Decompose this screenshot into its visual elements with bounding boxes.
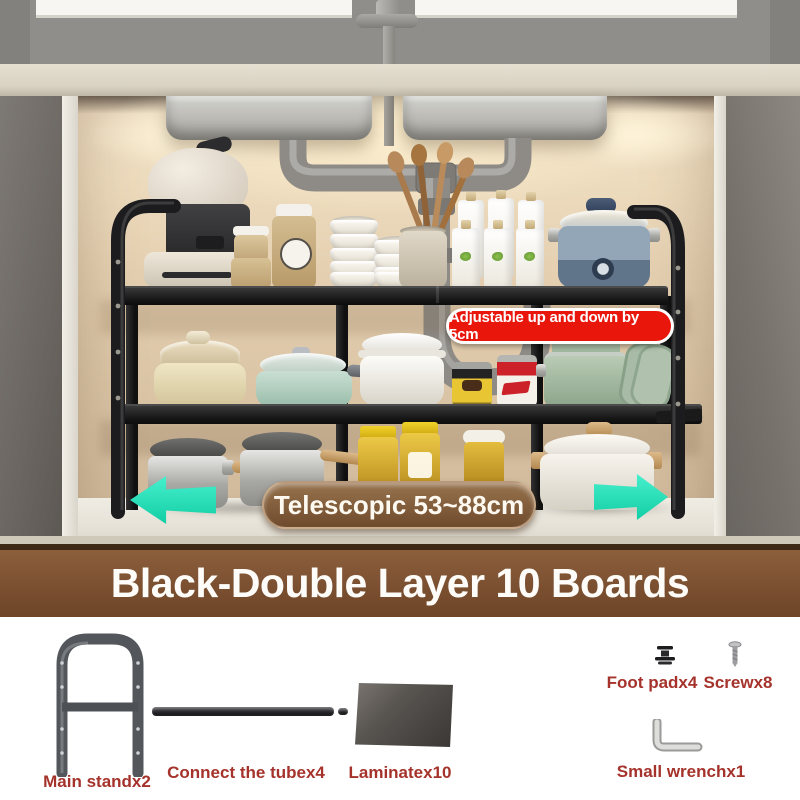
foot-pad-label: Foot padx4 (596, 673, 708, 693)
main-stand-label: Main standx2 (18, 772, 176, 792)
laminate-icon (355, 683, 453, 747)
main-stand-icon (48, 627, 150, 777)
connect-tube-icon (152, 707, 334, 716)
screw-icon (726, 641, 744, 671)
product-image: Adjustable up and down by 5cm Telescopic… (0, 0, 800, 800)
connect-tube-label: Connect the tubex4 (156, 763, 336, 783)
laminate-label: Laminatex10 (330, 763, 470, 783)
small-wrench-label: Small wrenchx1 (606, 762, 756, 782)
cabinet-frame-left (62, 96, 78, 544)
cabinet-door-right (726, 96, 800, 544)
telescopic-pill: Telescopic 53~88cm (262, 481, 536, 529)
floor-front-edge (0, 536, 800, 544)
rack-side-frames (0, 0, 800, 544)
parts-section: Main standx2 Connect the tubex4 Laminate… (0, 617, 800, 800)
screw-label: Screwx8 (694, 673, 782, 693)
small-wrench-icon (650, 719, 704, 753)
foot-pad-icon (652, 645, 678, 669)
cabinet-frame-right (714, 96, 726, 544)
cabinet-door-left (0, 96, 62, 544)
banner-title: Black-Double Layer 10 Boards (0, 550, 800, 617)
connect-tube-cap (338, 708, 348, 715)
adjustable-badge: Adjustable up and down by 5cm (446, 308, 674, 344)
